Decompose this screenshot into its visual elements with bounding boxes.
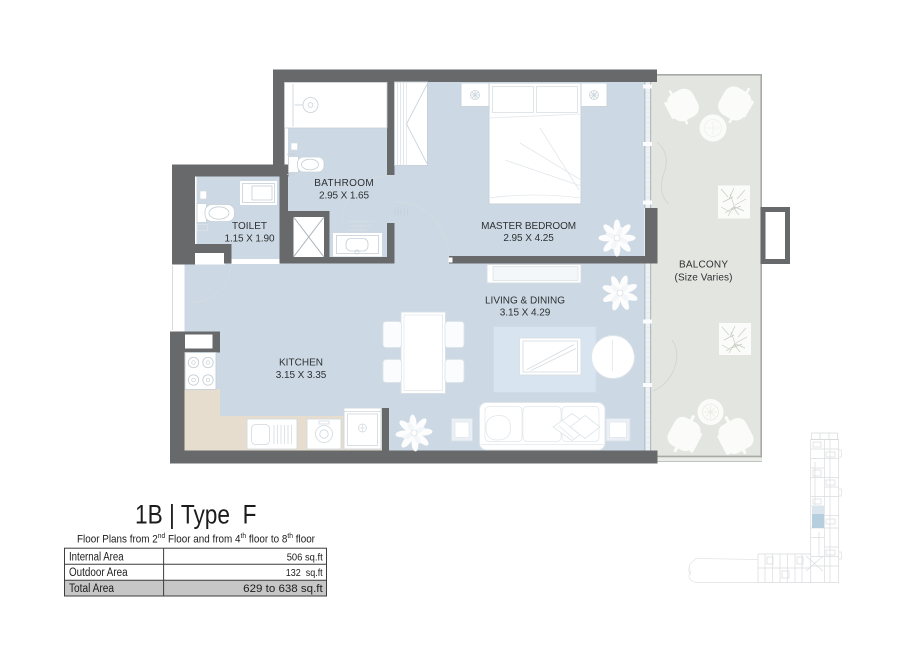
svg-text:Outdoor Area: Outdoor Area (69, 567, 128, 579)
svg-text:1.15 X 1.90: 1.15 X 1.90 (225, 234, 275, 245)
svg-text:TOILET: TOILET (232, 221, 267, 232)
svg-text:KITCHEN: KITCHEN (279, 358, 323, 369)
svg-text:BALCONY: BALCONY (679, 260, 728, 271)
svg-text:Internal Area: Internal Area (69, 551, 124, 563)
svg-text:2.95 X 4.25: 2.95 X 4.25 (503, 233, 554, 244)
svg-text:506 sq.ft: 506 sq.ft (287, 552, 323, 563)
svg-text:Total Area: Total Area (69, 583, 115, 595)
svg-text:BATHROOM: BATHROOM (314, 178, 374, 189)
svg-text:Floor Plans from 2nd Floor and: Floor Plans from 2nd Floor and from 4th … (77, 531, 315, 546)
svg-text:MASTER BEDROOM: MASTER BEDROOM (481, 221, 576, 232)
svg-text:3.15 X 4.29: 3.15 X 4.29 (500, 308, 551, 319)
svg-text:629 to 638 sq.ft: 629 to 638 sq.ft (243, 583, 323, 595)
svg-text:2.95 X 1.65: 2.95 X 1.65 (319, 191, 369, 202)
svg-text:1B | Type F: 1B | Type F (135, 500, 257, 530)
svg-text:(Size Varies): (Size Varies) (675, 273, 733, 284)
svg-text:LIVING & DINING: LIVING & DINING (485, 296, 565, 307)
svg-text:3.15 X 3.35: 3.15 X 3.35 (276, 370, 327, 381)
svg-text:132 sq.ft: 132 sq.ft (286, 568, 323, 579)
